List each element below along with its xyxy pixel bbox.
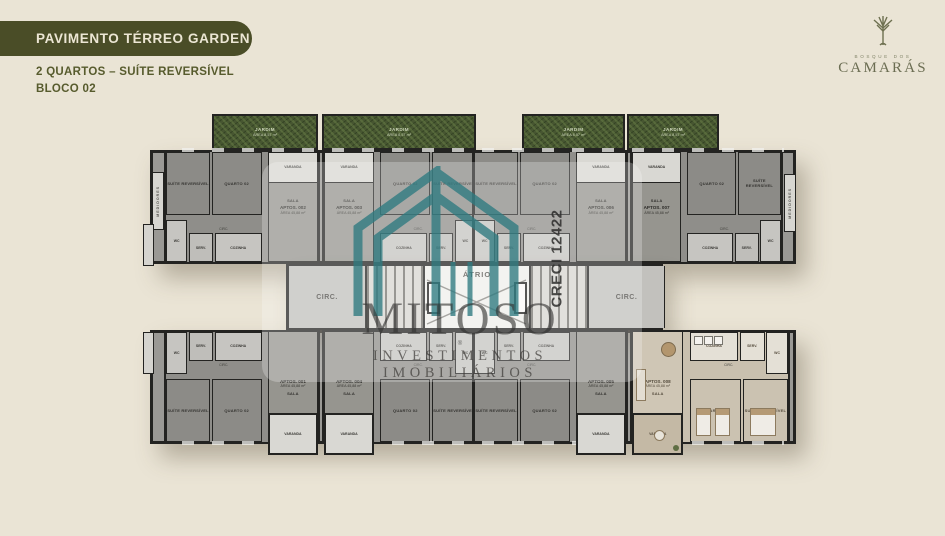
medidores-left: MEDIDORES [152, 172, 164, 230]
window-band-top [164, 148, 784, 152]
single-bed [715, 408, 730, 436]
room-serv: SERV. [189, 233, 213, 262]
subtitle: 2 QUARTOS – SUÍTE REVERSÍVEL BLOCO 02 [36, 64, 234, 97]
dining-table [661, 342, 676, 357]
subtitle-line2: BLOCO 02 [36, 81, 234, 98]
room-quarto-02: QUARTO 02 [690, 379, 741, 442]
floor-plan: JARDIM ÁREA 8,57 m² JARDIM ÁREA 8,57 m² … [148, 110, 800, 468]
room-varanda: VARANDA [576, 413, 626, 455]
single-bed [696, 408, 711, 436]
jardim-area: ÁREA 8,57 m² [253, 133, 277, 137]
room-serv: SERV. [189, 332, 213, 361]
room-suite-reversivel: SUÍTE REVERSÍVEL [474, 379, 518, 442]
room-cozinha: COZINHA [687, 233, 733, 262]
room-quarto-02: QUARTO 02 [380, 379, 430, 442]
room-suite-reversivel: SUÍTE REVERSÍVEL [738, 152, 781, 215]
service-niche [143, 224, 154, 266]
page: { "header": { "banner": "PAVIMENTO TÉRRE… [0, 0, 945, 536]
brand-logo: BOSQUE DOS CAMARÁS [833, 14, 933, 77]
plant [673, 445, 679, 451]
page-title: PAVIMENTO TÉRREO GARDEN [36, 31, 250, 46]
double-bed [750, 408, 776, 436]
unit-area: ÁREA 45,88 m² [589, 384, 614, 388]
unit-label: APTOS. 008 [645, 379, 671, 384]
watermark-brand-name: MITOSO [302, 292, 618, 346]
room-varanda: VARANDA [632, 413, 683, 455]
window-band-bottom [164, 441, 784, 445]
unit-area: ÁREA 45,88 m² [337, 384, 362, 388]
room-varanda: VARANDA [324, 413, 374, 455]
room-circ: CIRC. [695, 227, 755, 231]
room-suite-reversivel: SUÍTE REVERSÍVEL [166, 379, 210, 442]
room-suite-reversivel: SUÍTE REVERSÍVEL [432, 379, 476, 442]
room-quarto-02: QUARTO 02 [520, 379, 570, 442]
page-title-banner: PAVIMENTO TÉRREO GARDEN [0, 21, 252, 56]
room-quarto-02: QUARTO 02 [687, 152, 736, 215]
sink-icon [704, 336, 713, 345]
room-circ: CIRC. [698, 363, 760, 367]
jardim-label: JARDIM [389, 127, 409, 132]
room-serv: SERV. [735, 233, 759, 262]
room-cozinha: COZINHA [215, 233, 262, 262]
room-circ: CIRC. [193, 363, 254, 367]
creci-number: CRECI 12422 [549, 204, 566, 314]
balcony-table [654, 430, 665, 441]
room-suite-reversivel: SUÍTE REVERSÍVEL [166, 152, 210, 215]
room-circ: CIRC. [193, 227, 254, 231]
jardim-patch: JARDIM ÁREA 8,57 m² [627, 114, 719, 150]
room-quarto-02: QUARTO 02 [212, 152, 262, 215]
subtitle-line1: 2 QUARTOS – SUÍTE REVERSÍVEL [36, 64, 234, 81]
jardim-label: JARDIM [255, 127, 275, 132]
room-suite-reversivel: SUÍTE REVERSÍVEL [743, 379, 788, 442]
medidores-right: MEDIDORES [784, 174, 796, 232]
unit-area: ÁREA 45,88 m² [644, 211, 669, 215]
service-niche [143, 332, 154, 374]
room-wc: WC [760, 220, 781, 262]
jardim-area: ÁREA 8,57 m² [661, 133, 685, 137]
unit-area: ÁREA 45,88 m² [281, 384, 306, 388]
jardim-label: JARDIM [663, 127, 683, 132]
jardim-label: JARDIM [563, 127, 583, 132]
jardim-area: ÁREA 8,57 m² [387, 133, 411, 137]
jardim-patch: JARDIM ÁREA 8,57 m² [322, 114, 476, 150]
room-quarto-02: QUARTO 02 [212, 379, 262, 442]
unit-label: APTOS. 007 [644, 205, 670, 210]
stove-icon [694, 336, 703, 345]
watermark-tagline: INVESTIMENTOS IMOBILIÁRIOS [292, 348, 628, 382]
apartment-unit-007: SUÍTE REVERSÍVEL QUARTO 02 SALA APTOS. 0… [630, 150, 783, 264]
fridge-icon [714, 336, 723, 345]
apartment-unit-008: SUÍTE REVERSÍVEL QUARTO 02 APTOS. 008 ÁR… [630, 330, 790, 444]
jardim-patch: JARDIM ÁREA 8,57 m² [522, 114, 625, 150]
jardim-area: ÁREA 8,57 m² [561, 133, 585, 137]
brand-subname: BOSQUE DOS [833, 54, 933, 59]
registered-mark: ® [302, 341, 618, 347]
brand-name: CAMARÁS [833, 60, 933, 77]
room-wc: WC [166, 220, 187, 262]
room-cozinha: COZINHA [690, 332, 738, 361]
jardim-patch: JARDIM ÁREA 8,57 m² [212, 114, 318, 150]
room-wc: WC [766, 332, 788, 374]
room-serv: SERV. [740, 332, 765, 361]
room-cozinha: COZINHA [215, 332, 262, 361]
room-varanda: VARANDA [268, 413, 318, 455]
room-wc: WC [166, 332, 187, 374]
unit-area: ÁREA 45,88 m² [645, 384, 670, 388]
tree-icon [869, 14, 897, 46]
